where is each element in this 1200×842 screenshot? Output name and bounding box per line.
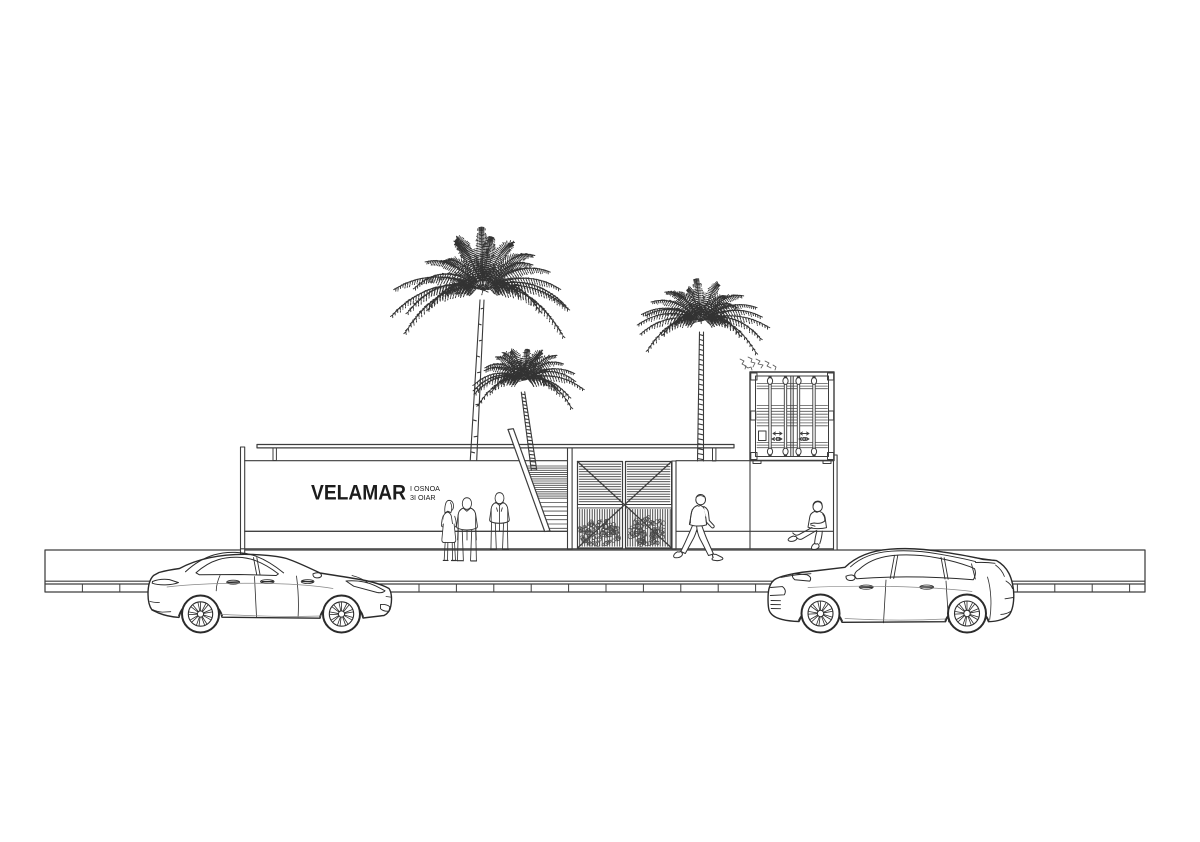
svg-text:VELAMAR: VELAMAR: [311, 481, 406, 505]
svg-text:3I OIAR: 3I OIAR: [410, 493, 436, 502]
svg-text:I OSNOA: I OSNOA: [410, 484, 440, 493]
